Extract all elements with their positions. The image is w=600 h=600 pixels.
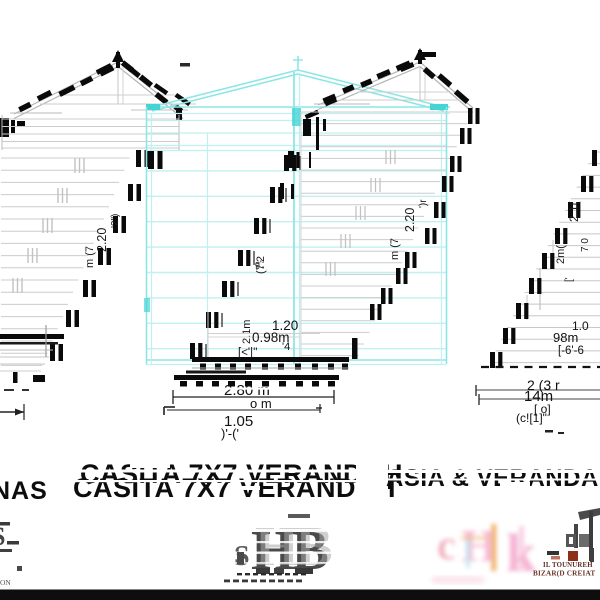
svg-text:[<'|'': [<'|'' bbox=[238, 347, 258, 359]
svg-text:2.1(: 2.1( bbox=[567, 201, 581, 222]
svg-text:BIZAR(D CREIAT: BIZAR(D CREIAT bbox=[533, 570, 595, 578]
svg-text:'2"): '2") bbox=[110, 214, 121, 228]
svg-text:'4: '4 bbox=[282, 341, 290, 353]
svg-text:m (7: m (7 bbox=[389, 238, 401, 260]
svg-text:NAS: NAS bbox=[0, 477, 48, 505]
svg-text:2.20: 2.20 bbox=[95, 228, 109, 252]
svg-text:7 0: 7 0 bbox=[580, 238, 591, 252]
svg-text:[-6'-6: [-6'-6 bbox=[558, 345, 584, 357]
svg-text:)'-(': )'-(' bbox=[221, 426, 239, 441]
svg-text:S: S bbox=[0, 522, 5, 551]
svg-text:[': [' bbox=[564, 277, 575, 282]
svg-text:')r: ')r bbox=[418, 199, 429, 208]
svg-text:98m: 98m bbox=[553, 330, 578, 345]
svg-text:ON: ON bbox=[0, 578, 11, 587]
svg-text:m (7: m (7 bbox=[84, 246, 96, 268]
svg-text:IL TOUNUREH: IL TOUNUREH bbox=[543, 562, 593, 569]
svg-text:g';: g'; bbox=[255, 259, 264, 269]
svg-text:2m(: 2m( bbox=[555, 245, 567, 264]
svg-text:c: c bbox=[437, 523, 456, 569]
svg-text:o m: o m bbox=[250, 396, 272, 411]
svg-text:(c![1]": (c![1]" bbox=[516, 411, 547, 425]
svg-text:2.20: 2.20 bbox=[403, 208, 417, 232]
